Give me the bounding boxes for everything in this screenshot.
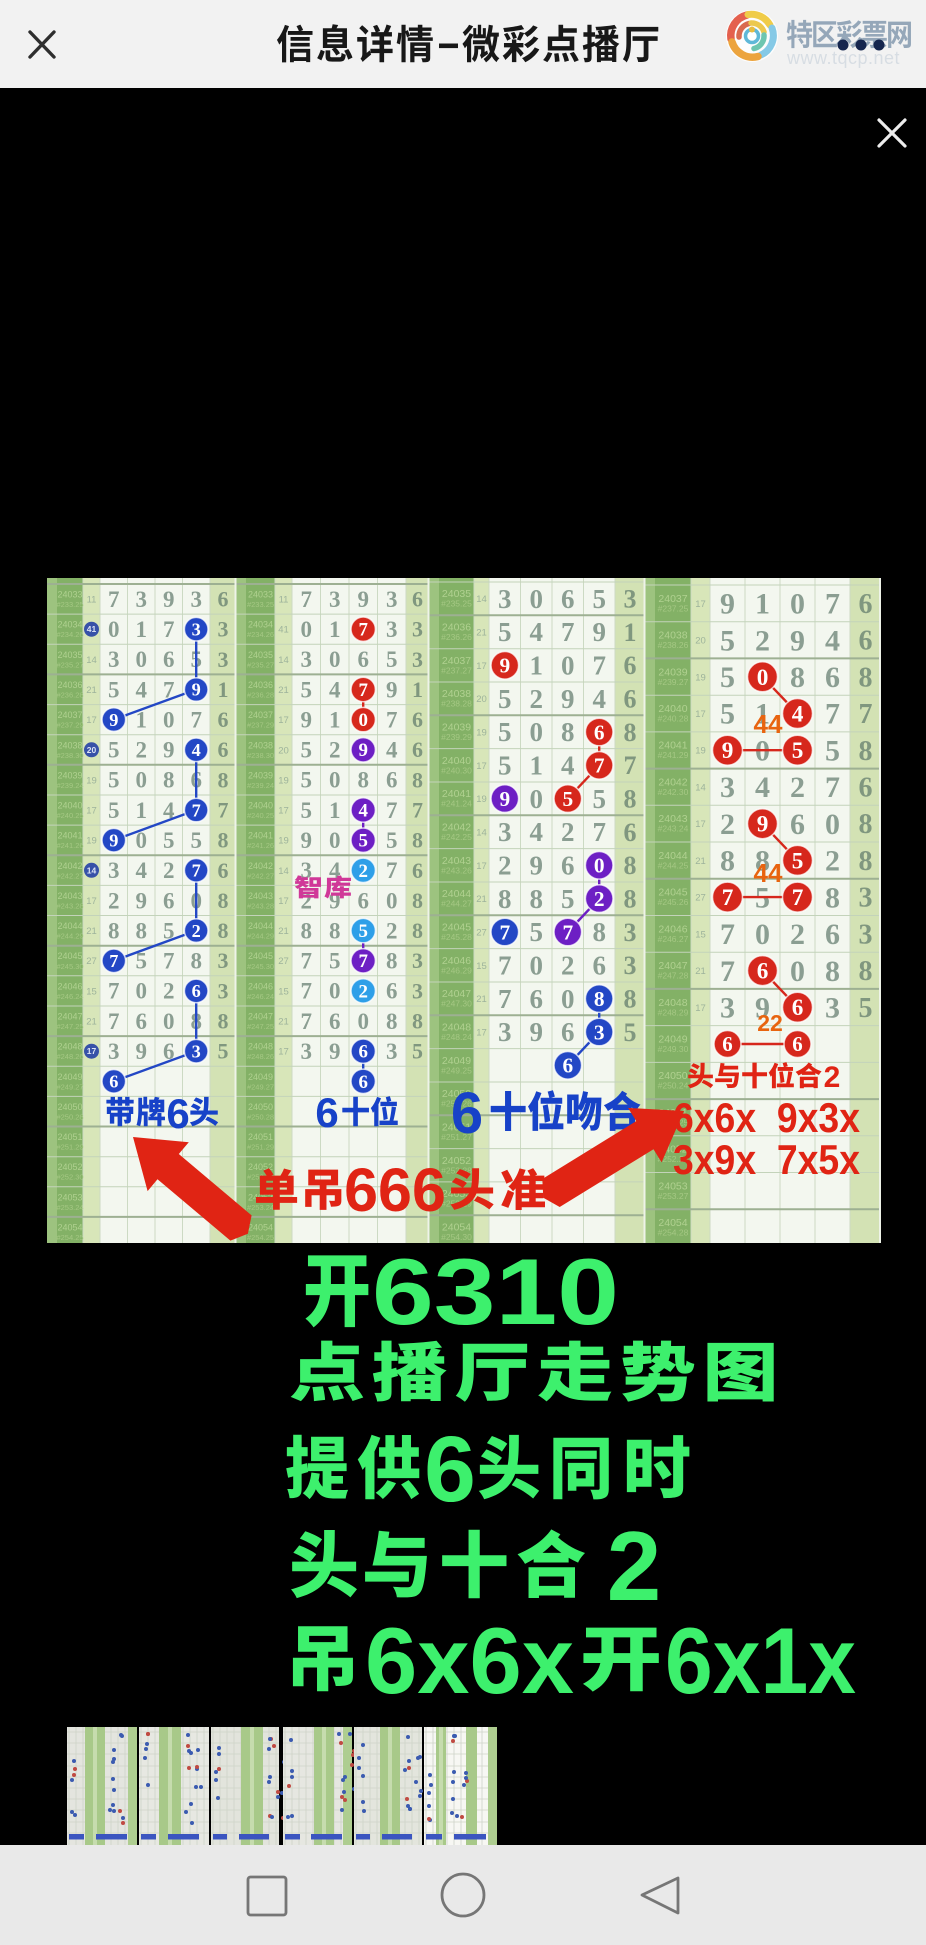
svg-text:2: 2 <box>386 918 398 943</box>
svg-text:14: 14 <box>476 828 487 839</box>
svg-text:9: 9 <box>592 617 606 647</box>
svg-text:2: 2 <box>790 771 805 804</box>
svg-text:#247.28: #247.28 <box>658 971 689 981</box>
svg-text:3: 3 <box>190 587 202 612</box>
svg-text:#243.24: #243.24 <box>658 824 689 834</box>
svg-text:#241.26: #241.26 <box>247 841 274 850</box>
svg-text:0: 0 <box>529 951 543 981</box>
svg-text:17: 17 <box>86 806 97 817</box>
svg-text:#244.29: #244.29 <box>56 932 83 941</box>
svg-text:2: 2 <box>358 861 367 882</box>
svg-text:24041: 24041 <box>57 831 82 841</box>
svg-text:#247.30: #247.30 <box>441 999 472 1009</box>
svg-text:8: 8 <box>135 918 147 943</box>
svg-text:7: 7 <box>720 918 735 951</box>
svg-text:2: 2 <box>135 738 147 763</box>
svg-text:6: 6 <box>790 808 805 841</box>
svg-text:1: 1 <box>218 677 229 702</box>
svg-text:17: 17 <box>695 1003 706 1014</box>
svg-text:#244.25: #244.25 <box>658 860 689 870</box>
svg-text:5: 5 <box>300 768 312 793</box>
svg-text:#243.28: #243.28 <box>56 902 83 911</box>
svg-text:8: 8 <box>190 949 202 974</box>
svg-text:0: 0 <box>329 768 341 793</box>
svg-text:7: 7 <box>792 885 804 911</box>
svg-text:5: 5 <box>498 751 512 781</box>
svg-text:#253.24: #253.24 <box>56 1203 83 1212</box>
svg-text:14: 14 <box>87 865 97 875</box>
svg-text:#234.26: #234.26 <box>56 630 83 639</box>
svg-text:4: 4 <box>358 801 368 822</box>
svg-text:6: 6 <box>163 888 175 913</box>
svg-text:#240.30: #240.30 <box>441 765 472 775</box>
svg-text:7: 7 <box>218 798 229 823</box>
svg-text:2: 2 <box>825 845 840 878</box>
svg-text:20: 20 <box>87 745 97 755</box>
svg-text:19: 19 <box>278 836 289 847</box>
svg-text:#239.24: #239.24 <box>56 781 83 790</box>
svg-text:2: 2 <box>358 981 367 1002</box>
svg-text:3: 3 <box>218 978 229 1003</box>
svg-text:8: 8 <box>218 767 229 792</box>
svg-text:6: 6 <box>218 858 229 883</box>
svg-text:9: 9 <box>163 738 175 763</box>
svg-text:6: 6 <box>192 981 201 1001</box>
svg-text:8: 8 <box>592 917 606 947</box>
svg-text:6: 6 <box>166 1090 189 1137</box>
svg-text:7: 7 <box>192 800 201 820</box>
svg-text:24038: 24038 <box>57 740 82 750</box>
svg-text:17: 17 <box>278 896 289 907</box>
svg-text:24046: 24046 <box>57 981 82 991</box>
svg-text:17: 17 <box>86 896 97 907</box>
svg-text:17: 17 <box>695 709 706 720</box>
svg-text:#241.29: #241.29 <box>658 750 689 760</box>
svg-text:#253.27: #253.27 <box>658 1191 689 1201</box>
svg-text:9: 9 <box>300 828 312 853</box>
svg-text:3: 3 <box>218 617 229 642</box>
svg-text:6: 6 <box>529 984 543 1014</box>
svg-text:7: 7 <box>108 979 120 1004</box>
svg-text:7: 7 <box>825 588 840 621</box>
svg-text:15: 15 <box>695 929 706 940</box>
svg-text:6: 6 <box>218 707 229 732</box>
svg-text:19: 19 <box>86 836 97 847</box>
svg-text:4: 4 <box>825 624 840 657</box>
svg-text:#249.27: #249.27 <box>247 1082 274 1091</box>
svg-text:6: 6 <box>792 995 804 1021</box>
svg-text:8: 8 <box>218 1009 229 1034</box>
svg-text:8: 8 <box>108 918 120 943</box>
svg-text:7: 7 <box>720 955 735 988</box>
svg-text:7: 7 <box>592 817 606 847</box>
svg-text:#246.24: #246.24 <box>56 992 83 1001</box>
svg-text:#245.30: #245.30 <box>56 962 83 971</box>
svg-text:4: 4 <box>135 858 147 883</box>
svg-text:7: 7 <box>592 651 606 681</box>
svg-text:7: 7 <box>825 771 840 804</box>
svg-text:#245.26: #245.26 <box>658 897 689 907</box>
svg-text:6: 6 <box>412 858 423 883</box>
svg-text:7: 7 <box>859 699 873 730</box>
svg-text:8: 8 <box>218 918 229 943</box>
svg-text:0: 0 <box>329 828 341 853</box>
svg-text:0: 0 <box>135 647 147 672</box>
svg-text:5: 5 <box>825 734 840 767</box>
svg-text:#246.24: #246.24 <box>247 992 274 1001</box>
svg-text:0: 0 <box>135 979 147 1004</box>
svg-text:5: 5 <box>218 1039 229 1064</box>
svg-text:24043: 24043 <box>248 891 273 901</box>
svg-text:7: 7 <box>358 620 367 641</box>
svg-text:14: 14 <box>278 655 289 666</box>
svg-text:#233.25: #233.25 <box>56 600 83 609</box>
svg-text:20: 20 <box>476 694 487 705</box>
svg-text:9: 9 <box>109 830 118 850</box>
svg-text:0: 0 <box>358 710 367 731</box>
svg-text:7: 7 <box>386 798 398 823</box>
svg-text:14: 14 <box>695 783 706 794</box>
svg-text:8: 8 <box>498 884 512 914</box>
svg-text:8: 8 <box>624 718 637 747</box>
svg-text:7: 7 <box>722 885 734 911</box>
svg-text:21: 21 <box>476 994 487 1005</box>
svg-text:8: 8 <box>300 918 312 943</box>
svg-text:#252.30: #252.30 <box>56 1173 83 1182</box>
svg-text:24043: 24043 <box>57 891 82 901</box>
svg-text:19: 19 <box>695 672 706 683</box>
svg-text:9: 9 <box>499 787 510 811</box>
svg-text:8: 8 <box>412 888 423 913</box>
svg-text:5: 5 <box>498 717 512 747</box>
svg-text:0: 0 <box>757 665 769 691</box>
svg-text:#245.30: #245.30 <box>247 962 274 971</box>
svg-text:#254.28: #254.28 <box>658 1228 689 1238</box>
svg-text:19: 19 <box>695 746 706 757</box>
svg-text:6x6x 9x3x: 6x6x 9x3x <box>673 1094 861 1141</box>
svg-text:5: 5 <box>498 617 512 647</box>
svg-text:24034: 24034 <box>248 620 273 630</box>
svg-text:6: 6 <box>358 1042 367 1063</box>
svg-text:#246.29: #246.29 <box>441 965 472 975</box>
svg-text:7: 7 <box>190 708 202 733</box>
svg-text:6: 6 <box>859 626 873 657</box>
svg-text:24033: 24033 <box>248 590 273 600</box>
svg-text:7: 7 <box>624 751 637 780</box>
svg-text:0: 0 <box>825 808 840 841</box>
svg-text:19: 19 <box>476 794 487 805</box>
svg-text:#240.25: #240.25 <box>56 811 83 820</box>
svg-text:7: 7 <box>562 920 573 944</box>
svg-text:7: 7 <box>300 1009 312 1034</box>
svg-text:27: 27 <box>476 928 487 939</box>
svg-text:8: 8 <box>412 828 423 853</box>
svg-text:9: 9 <box>357 587 369 612</box>
svg-text:7: 7 <box>358 951 367 972</box>
svg-text:0: 0 <box>561 984 575 1014</box>
svg-text:24037: 24037 <box>57 710 82 720</box>
svg-text:7: 7 <box>412 798 423 823</box>
svg-text:7: 7 <box>108 1009 120 1034</box>
svg-text:19: 19 <box>278 775 289 786</box>
svg-text:27: 27 <box>86 956 97 967</box>
svg-text:24051: 24051 <box>248 1132 273 1142</box>
svg-text:3: 3 <box>498 1017 512 1047</box>
svg-text:#250.28: #250.28 <box>56 1113 83 1122</box>
svg-text:6: 6 <box>825 661 840 694</box>
svg-text:6: 6 <box>218 737 229 762</box>
svg-text:3: 3 <box>720 992 735 1025</box>
svg-text:8: 8 <box>825 955 840 988</box>
svg-text:7: 7 <box>108 587 120 612</box>
svg-text:9: 9 <box>163 587 175 612</box>
svg-text:3: 3 <box>192 620 201 640</box>
svg-text:22: 22 <box>757 1010 783 1036</box>
svg-text:#251.29: #251.29 <box>247 1143 274 1152</box>
svg-text:24054: 24054 <box>248 1223 273 1233</box>
svg-text:24048: 24048 <box>57 1042 82 1052</box>
svg-text:#248.29: #248.29 <box>658 1007 689 1017</box>
svg-text:9: 9 <box>329 888 341 913</box>
svg-text:5: 5 <box>720 661 735 694</box>
svg-text:2: 2 <box>498 851 512 881</box>
svg-text:21: 21 <box>695 966 706 977</box>
svg-text:24052: 24052 <box>57 1162 82 1172</box>
svg-text:5: 5 <box>720 624 735 657</box>
svg-text:0: 0 <box>163 708 175 733</box>
svg-text:8: 8 <box>624 785 637 814</box>
svg-text:0: 0 <box>300 617 312 642</box>
svg-text:24047: 24047 <box>57 1012 82 1022</box>
svg-text:8: 8 <box>561 717 575 747</box>
svg-text:#254.25: #254.25 <box>56 1233 83 1242</box>
svg-text:6: 6 <box>109 1072 118 1092</box>
svg-text:7: 7 <box>358 680 367 701</box>
svg-text:6: 6 <box>792 1032 802 1056</box>
svg-text:7: 7 <box>825 698 840 731</box>
svg-text:6: 6 <box>424 1417 476 1521</box>
svg-text:5: 5 <box>190 828 202 853</box>
svg-text:#236.28: #236.28 <box>247 691 274 700</box>
svg-text:6: 6 <box>412 737 423 762</box>
svg-text:19: 19 <box>476 728 487 739</box>
svg-text:6x6x: 6x6x <box>365 1608 574 1713</box>
svg-text:8: 8 <box>790 661 805 694</box>
svg-text:5: 5 <box>108 798 120 823</box>
svg-text:9: 9 <box>300 708 312 733</box>
svg-text:24036: 24036 <box>248 680 273 690</box>
svg-text:7: 7 <box>386 708 398 733</box>
svg-text:5: 5 <box>358 831 367 852</box>
svg-text:4: 4 <box>755 771 770 804</box>
svg-text:7: 7 <box>386 858 398 883</box>
svg-text:41: 41 <box>87 624 97 634</box>
svg-text:8: 8 <box>357 768 369 793</box>
svg-text:24050: 24050 <box>57 1102 82 1112</box>
svg-text:9: 9 <box>499 654 510 678</box>
svg-text:19: 19 <box>86 775 97 786</box>
svg-text:6: 6 <box>859 773 873 804</box>
svg-text:9: 9 <box>192 680 201 700</box>
svg-text:0: 0 <box>529 717 543 747</box>
svg-text:#242.30: #242.30 <box>658 787 689 797</box>
svg-text:3: 3 <box>624 585 637 614</box>
svg-text:17: 17 <box>695 599 706 610</box>
svg-text:7: 7 <box>300 587 312 612</box>
svg-text:#245.28: #245.28 <box>441 932 472 942</box>
svg-text:9: 9 <box>386 677 398 702</box>
svg-text:9: 9 <box>135 1039 147 1064</box>
svg-text:24042: 24042 <box>57 861 82 871</box>
svg-text:24045: 24045 <box>57 951 82 961</box>
svg-text:3: 3 <box>498 584 512 614</box>
svg-text:4: 4 <box>386 738 398 763</box>
svg-text:24048: 24048 <box>248 1042 273 1052</box>
svg-text:24039: 24039 <box>248 770 273 780</box>
svg-text:#241.24: #241.24 <box>441 799 472 809</box>
svg-text:9: 9 <box>529 1017 543 1047</box>
svg-text:24051: 24051 <box>57 1132 82 1142</box>
svg-text:6: 6 <box>624 651 637 680</box>
svg-text:6: 6 <box>412 707 423 732</box>
svg-text:21: 21 <box>278 926 289 937</box>
svg-text:2: 2 <box>329 738 341 763</box>
svg-text:1: 1 <box>412 677 423 702</box>
svg-text:8: 8 <box>859 956 873 987</box>
svg-text:8: 8 <box>386 1009 398 1034</box>
svg-text:6: 6 <box>561 1017 575 1047</box>
svg-text:3: 3 <box>624 951 637 980</box>
svg-text:6x1x: 6x1x <box>665 1608 856 1713</box>
svg-text:7: 7 <box>300 979 312 1004</box>
svg-text:2: 2 <box>790 918 805 951</box>
svg-text:1: 1 <box>135 798 147 823</box>
svg-text:5: 5 <box>300 738 312 763</box>
svg-text:9: 9 <box>109 710 118 730</box>
svg-text:7: 7 <box>109 951 118 971</box>
svg-text:24036: 24036 <box>57 680 82 690</box>
svg-text:8: 8 <box>412 1009 423 1034</box>
svg-text:2: 2 <box>824 1061 841 1094</box>
svg-text:6: 6 <box>592 951 606 981</box>
svg-text:#243.26: #243.26 <box>441 865 472 875</box>
svg-text:6: 6 <box>451 1081 483 1146</box>
svg-text:21: 21 <box>695 856 706 867</box>
svg-text:1: 1 <box>755 588 770 621</box>
svg-text:5: 5 <box>561 884 575 914</box>
svg-text:#237.25: #237.25 <box>658 603 689 613</box>
svg-text:2: 2 <box>529 684 543 714</box>
svg-text:6: 6 <box>561 584 575 614</box>
svg-text:#239.29: #239.29 <box>441 732 472 742</box>
svg-text:#246.27: #246.27 <box>658 934 689 944</box>
svg-text:11: 11 <box>87 595 97 606</box>
svg-text:6: 6 <box>329 1009 341 1034</box>
svg-text:7: 7 <box>561 617 575 647</box>
svg-text:2: 2 <box>163 858 175 883</box>
svg-text:0: 0 <box>329 979 341 1004</box>
svg-text:3x9x 7x5x: 3x9x 7x5x <box>673 1136 861 1183</box>
svg-text:6: 6 <box>561 851 575 881</box>
svg-text:#235.27: #235.27 <box>247 660 274 669</box>
svg-text:5: 5 <box>592 784 606 814</box>
svg-text:24040: 24040 <box>57 801 82 811</box>
svg-text:14: 14 <box>476 594 487 605</box>
svg-text:3: 3 <box>859 883 873 914</box>
svg-text:5: 5 <box>329 949 341 974</box>
svg-text:21: 21 <box>476 628 487 639</box>
svg-text:5: 5 <box>562 787 573 811</box>
svg-text:1: 1 <box>329 798 341 823</box>
svg-text:#234.26: #234.26 <box>247 630 274 639</box>
svg-text:5: 5 <box>300 677 312 702</box>
svg-text:#242.27: #242.27 <box>56 871 83 880</box>
svg-text:5: 5 <box>720 698 735 731</box>
svg-text:5: 5 <box>358 921 367 942</box>
svg-text:3: 3 <box>108 1039 120 1064</box>
svg-text:4: 4 <box>192 740 201 760</box>
svg-text:3: 3 <box>218 647 229 672</box>
svg-text:15: 15 <box>278 986 289 997</box>
svg-text:24044: 24044 <box>57 921 82 931</box>
svg-text:8: 8 <box>412 918 423 943</box>
svg-text:1: 1 <box>329 708 341 733</box>
svg-text:#248.26: #248.26 <box>56 1052 83 1061</box>
svg-text:6: 6 <box>722 1032 732 1056</box>
svg-text:8: 8 <box>218 828 229 853</box>
svg-text:3: 3 <box>108 858 120 883</box>
svg-text:2: 2 <box>607 1511 662 1621</box>
svg-text:20: 20 <box>695 636 706 647</box>
svg-text:24046: 24046 <box>248 981 273 991</box>
svg-text:6: 6 <box>218 587 229 612</box>
svg-text:2: 2 <box>163 979 175 1004</box>
svg-text:#242.27: #242.27 <box>247 871 274 880</box>
svg-text:7: 7 <box>300 949 312 974</box>
svg-text:0: 0 <box>790 955 805 988</box>
svg-text:3: 3 <box>825 992 840 1025</box>
svg-text:#243.28: #243.28 <box>247 902 274 911</box>
svg-text:0: 0 <box>790 588 805 621</box>
svg-text:8: 8 <box>329 918 341 943</box>
svg-text:41: 41 <box>278 625 289 636</box>
svg-text:0: 0 <box>163 1009 175 1034</box>
svg-text:3: 3 <box>300 1039 312 1064</box>
svg-text:8: 8 <box>859 662 873 693</box>
svg-text:#244.29: #244.29 <box>247 932 274 941</box>
svg-text:6: 6 <box>357 888 369 913</box>
svg-text:27: 27 <box>278 956 289 967</box>
svg-text:#249.27: #249.27 <box>56 1082 83 1091</box>
svg-text:8: 8 <box>859 809 873 840</box>
svg-text:#237.29: #237.29 <box>56 721 83 730</box>
svg-text:#236.26: #236.26 <box>441 632 472 642</box>
svg-text:#235.27: #235.27 <box>56 660 83 669</box>
svg-text:6: 6 <box>315 1089 338 1136</box>
svg-text:0: 0 <box>386 888 398 913</box>
svg-text:3: 3 <box>412 948 423 973</box>
svg-text:9: 9 <box>757 812 769 838</box>
svg-text:17: 17 <box>278 806 289 817</box>
svg-text:5: 5 <box>624 1018 637 1047</box>
svg-text:3: 3 <box>412 617 423 642</box>
svg-text:24040: 24040 <box>248 801 273 811</box>
svg-text:8: 8 <box>594 987 605 1011</box>
svg-text:1: 1 <box>329 617 341 642</box>
svg-text:666: 666 <box>344 1156 446 1224</box>
svg-text:9: 9 <box>722 738 734 764</box>
svg-text:0: 0 <box>135 768 147 793</box>
